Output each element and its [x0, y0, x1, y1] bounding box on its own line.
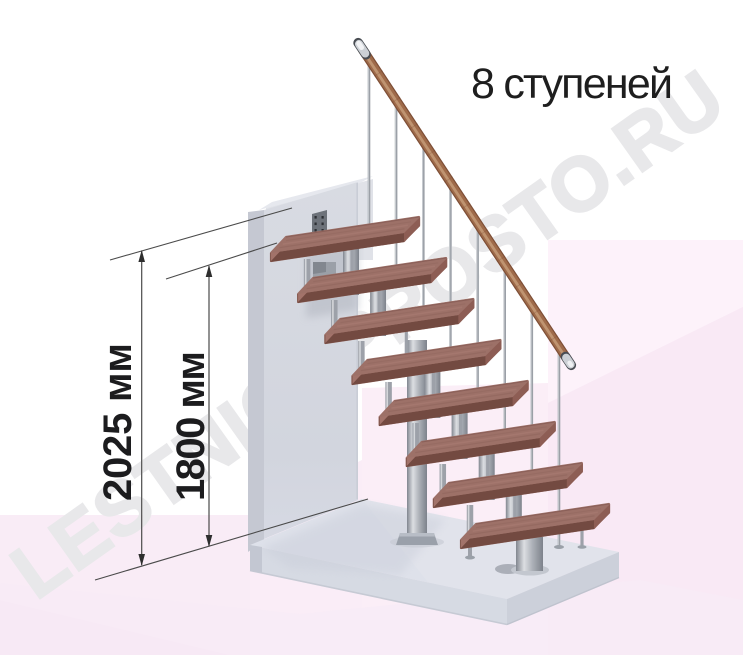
svg-text:1800 мм: 1800 мм [169, 351, 213, 501]
svg-text:8 ступеней: 8 ступеней [471, 60, 673, 108]
svg-text:2025 мм: 2025 мм [96, 343, 140, 501]
